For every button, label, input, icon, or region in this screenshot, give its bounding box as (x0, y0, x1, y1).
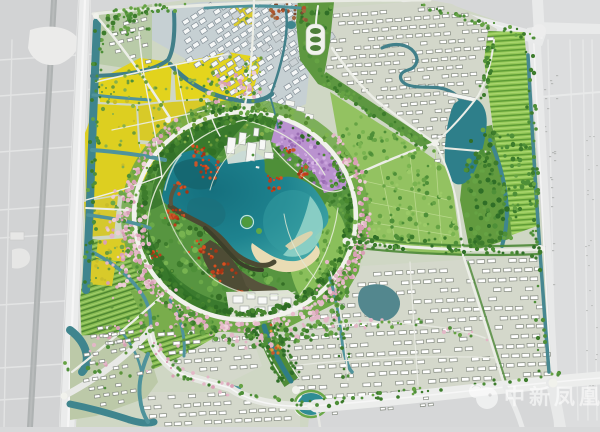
svg-text:中新凤凰: 中新凤凰 (504, 385, 600, 409)
